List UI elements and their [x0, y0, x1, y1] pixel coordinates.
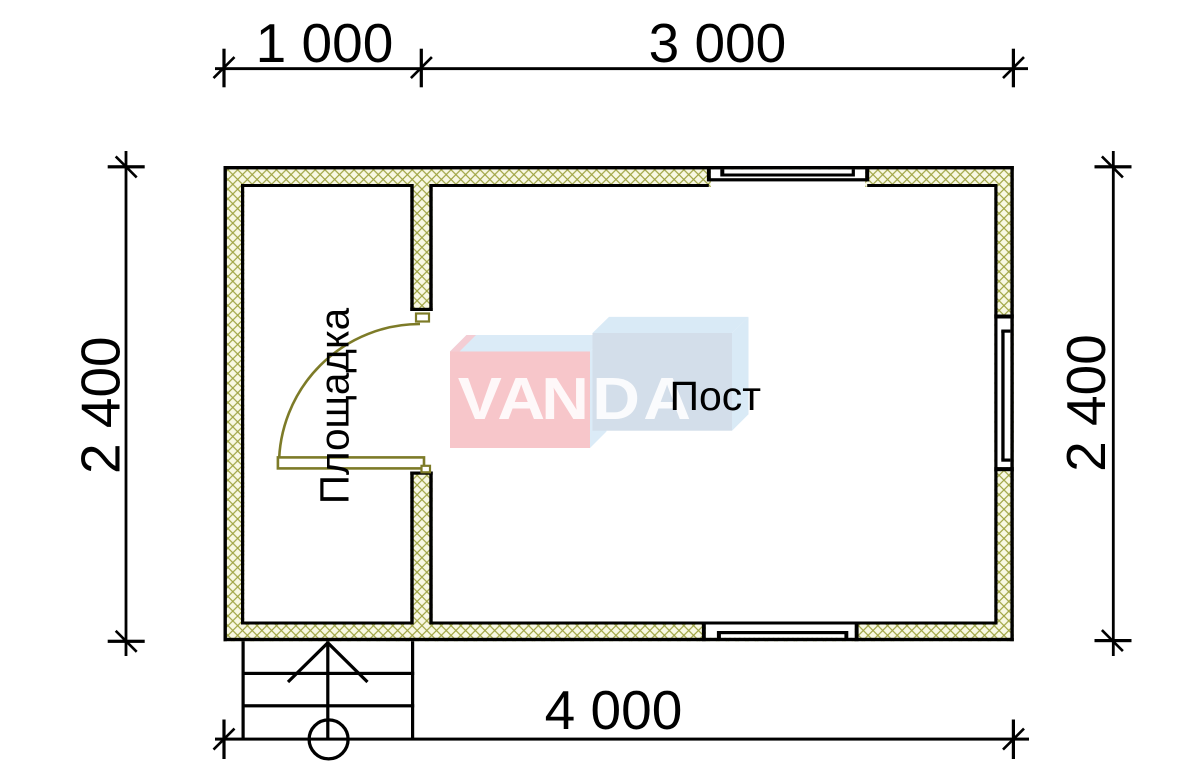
svg-text:A: A — [497, 366, 545, 432]
svg-text:D: D — [592, 366, 640, 432]
svg-text:1 000: 1 000 — [256, 12, 394, 74]
svg-text:V: V — [458, 366, 502, 432]
svg-text:3 000: 3 000 — [649, 12, 787, 74]
svg-text:N: N — [541, 366, 589, 432]
svg-text:4 000: 4 000 — [545, 679, 683, 741]
svg-text:2 400: 2 400 — [1055, 334, 1117, 472]
svg-text:Площадка: Площадка — [312, 307, 358, 504]
svg-text:Пост: Пост — [670, 373, 762, 419]
svg-text:2 400: 2 400 — [70, 336, 132, 474]
